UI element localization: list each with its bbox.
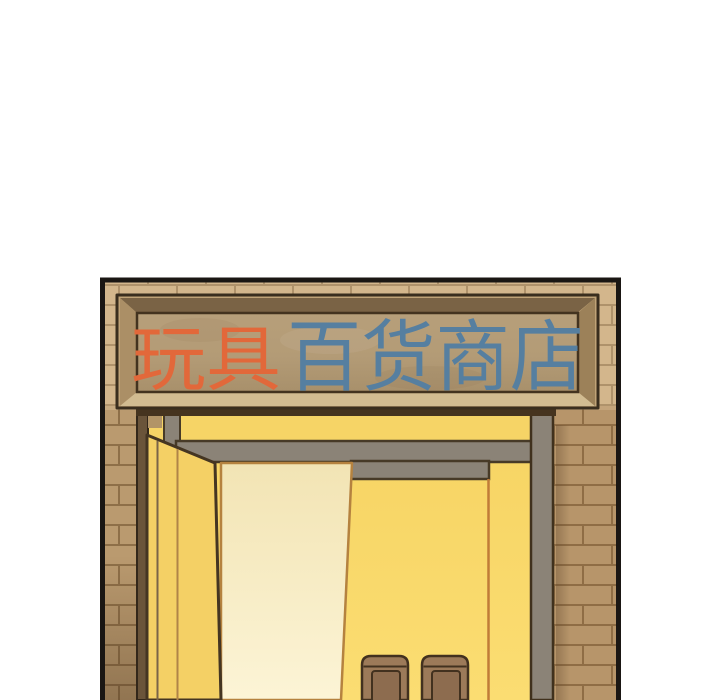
wooden-chair-back-left: [362, 656, 408, 700]
chair-back-inset: [372, 671, 400, 700]
door-frame-corner-wood: [148, 415, 162, 428]
door-jamb-right: [531, 413, 553, 700]
comic-panel: 玩具 百货商店: [105, 282, 617, 700]
comic-page: 玩具 百货商店: [0, 0, 720, 700]
store-sign-text: 玩具 百货商店: [131, 313, 584, 403]
chair-back-inset: [432, 671, 460, 700]
store-sign: 玩具 百货商店: [117, 295, 598, 408]
sign-text-department-store: 百货商店: [287, 313, 584, 403]
sliding-door-cream-panel[interactable]: [221, 463, 352, 700]
brick-shadow-bottom-left: [105, 555, 138, 700]
sign-bevel-top: [120, 298, 595, 313]
sign-text-toys: 玩具: [131, 318, 281, 401]
storefront-panel-illustration: 玩具 百货商店: [0, 0, 720, 700]
door-rail-lower: [351, 461, 489, 479]
door-rail-upper: [176, 441, 533, 462]
wooden-chair-back-right: [422, 656, 468, 700]
brick-shadow-by-jamb: [556, 425, 570, 700]
